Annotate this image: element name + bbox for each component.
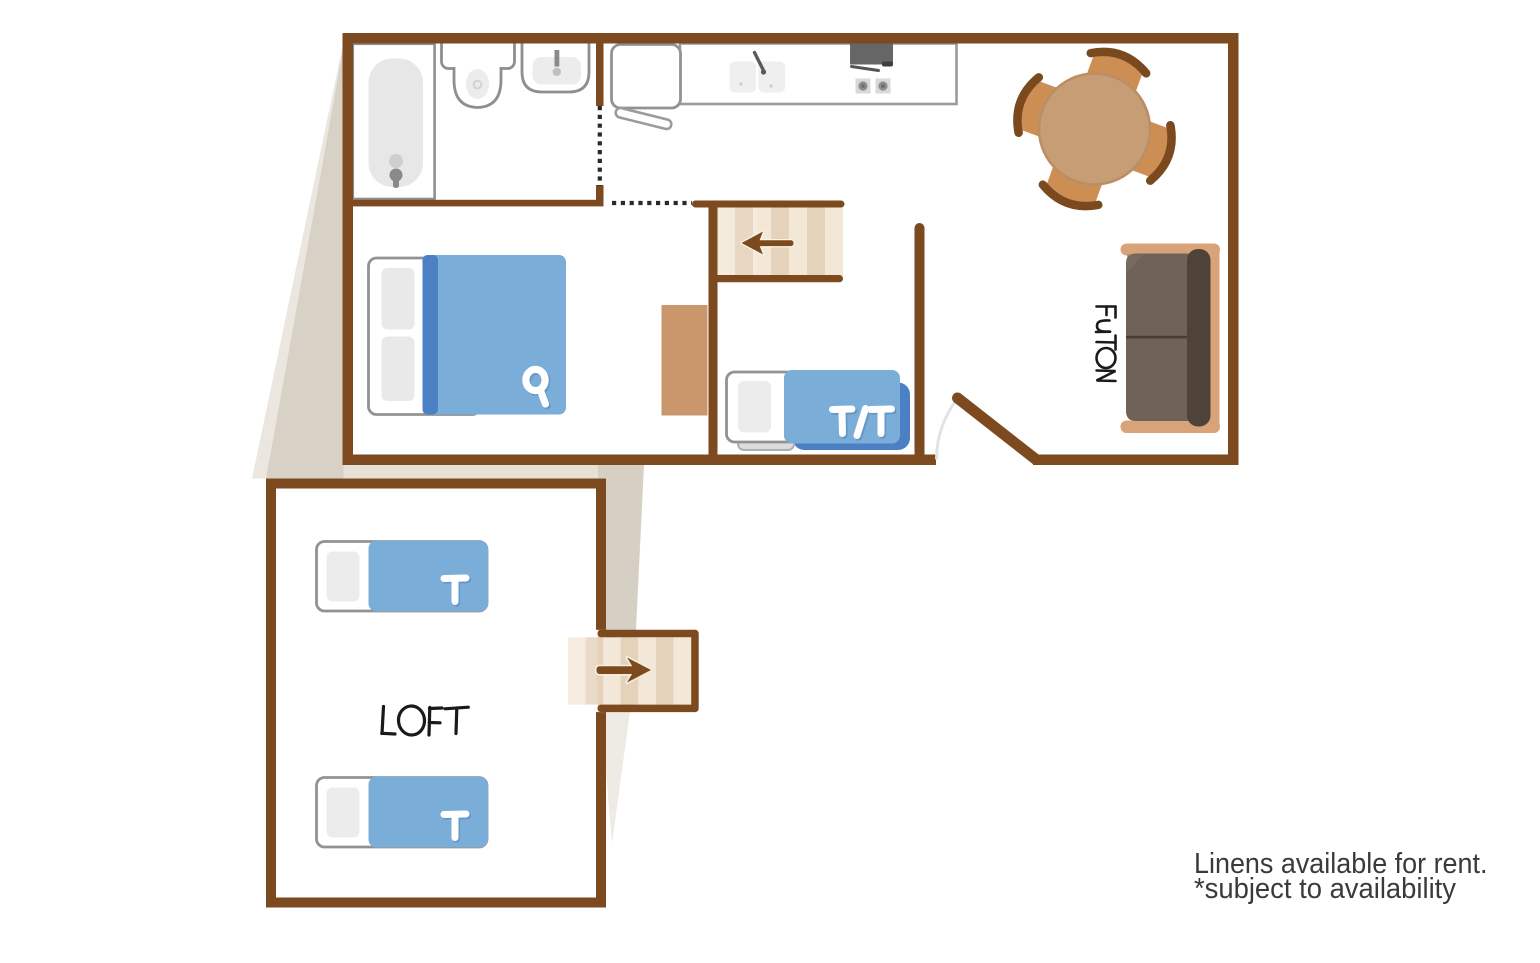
svg-text:*subject to availability: *subject to availability: [1194, 873, 1456, 905]
